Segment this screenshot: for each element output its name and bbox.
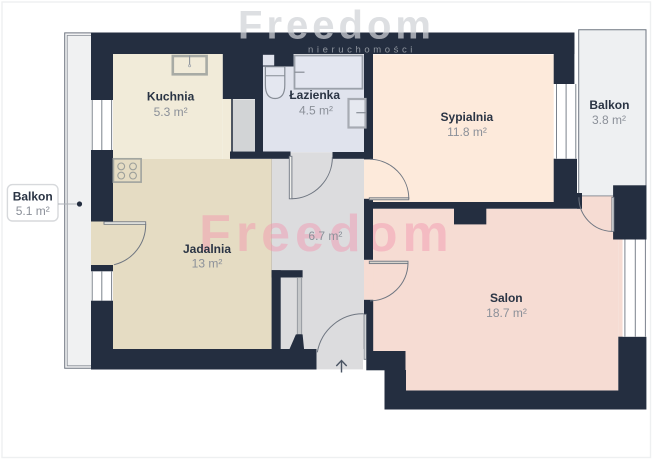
svg-text:Balkon: Balkon — [13, 190, 53, 204]
svg-text:13 m²: 13 m² — [192, 257, 223, 271]
svg-text:nieruchomości: nieruchomości — [308, 45, 416, 56]
svg-text:11.8 m²: 11.8 m² — [447, 125, 487, 139]
svg-text:Salon: Salon — [490, 291, 523, 305]
svg-text:Kuchnia: Kuchnia — [147, 90, 195, 104]
svg-text:Freedom: Freedom — [238, 4, 435, 48]
svg-text:Sypialnia: Sypialnia — [441, 110, 494, 124]
svg-text:3.8 m²: 3.8 m² — [592, 113, 626, 127]
svg-text:Jadalnia: Jadalnia — [183, 242, 231, 256]
svg-text:5.3 m²: 5.3 m² — [154, 105, 188, 119]
svg-text:Balkon: Balkon — [589, 98, 629, 112]
svg-text:5.1 m²: 5.1 m² — [16, 204, 50, 218]
svg-text:6.7 m²: 6.7 m² — [308, 229, 342, 243]
svg-text:Łazienka: Łazienka — [289, 88, 340, 102]
svg-text:4.5 m²: 4.5 m² — [299, 104, 333, 118]
svg-text:18.7 m²: 18.7 m² — [486, 306, 527, 320]
